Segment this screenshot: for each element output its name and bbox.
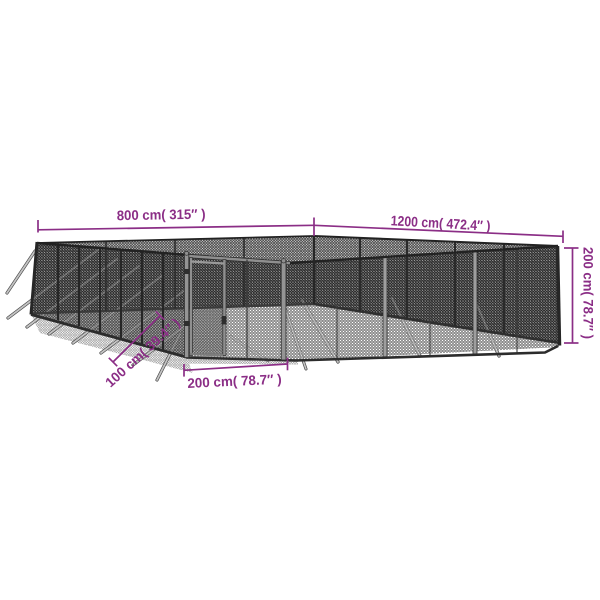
svg-text:200 cm( 78.7″ ): 200 cm( 78.7″ ) [187,372,282,391]
svg-text:800 cm( 315″ ): 800 cm( 315″ ) [117,207,206,224]
svg-text:1200 cm( 472.4″ ): 1200 cm( 472.4″ ) [390,212,491,234]
svg-text:200 cm( 78.7″ ): 200 cm( 78.7″ ) [581,247,596,339]
